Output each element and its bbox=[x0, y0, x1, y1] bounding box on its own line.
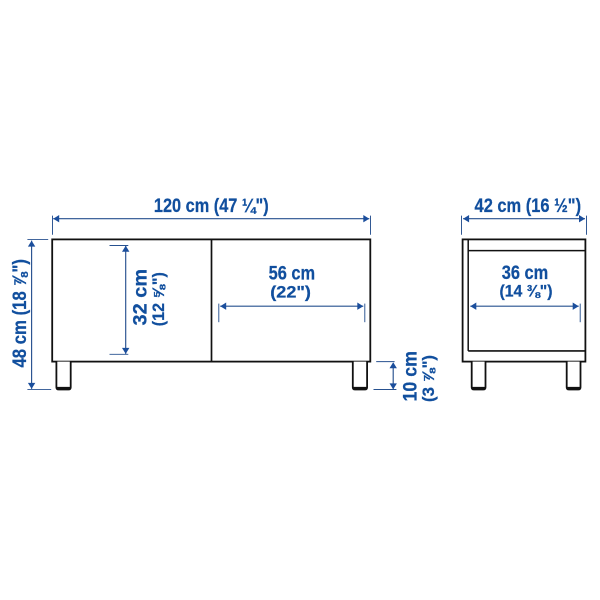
svg-text:(22"): (22") bbox=[270, 282, 311, 301]
svg-text:56 cm: 56 cm bbox=[269, 262, 316, 284]
svg-text:36 cm: 36 cm bbox=[502, 262, 549, 284]
svg-text:(14 ⅜"): (14 ⅜") bbox=[500, 282, 553, 301]
svg-text:42 cm (16 ½"): 42 cm (16 ½") bbox=[475, 195, 582, 217]
svg-text:48 cm (18 ⅞"): 48 cm (18 ⅞") bbox=[9, 259, 31, 368]
svg-text:32 cm: 32 cm bbox=[129, 269, 151, 326]
svg-text:(12 ⅝"): (12 ⅝") bbox=[149, 272, 168, 326]
svg-text:(3 ⅞"): (3 ⅞") bbox=[419, 355, 438, 402]
svg-text:120 cm (47 ¼"): 120 cm (47 ¼") bbox=[154, 195, 269, 217]
